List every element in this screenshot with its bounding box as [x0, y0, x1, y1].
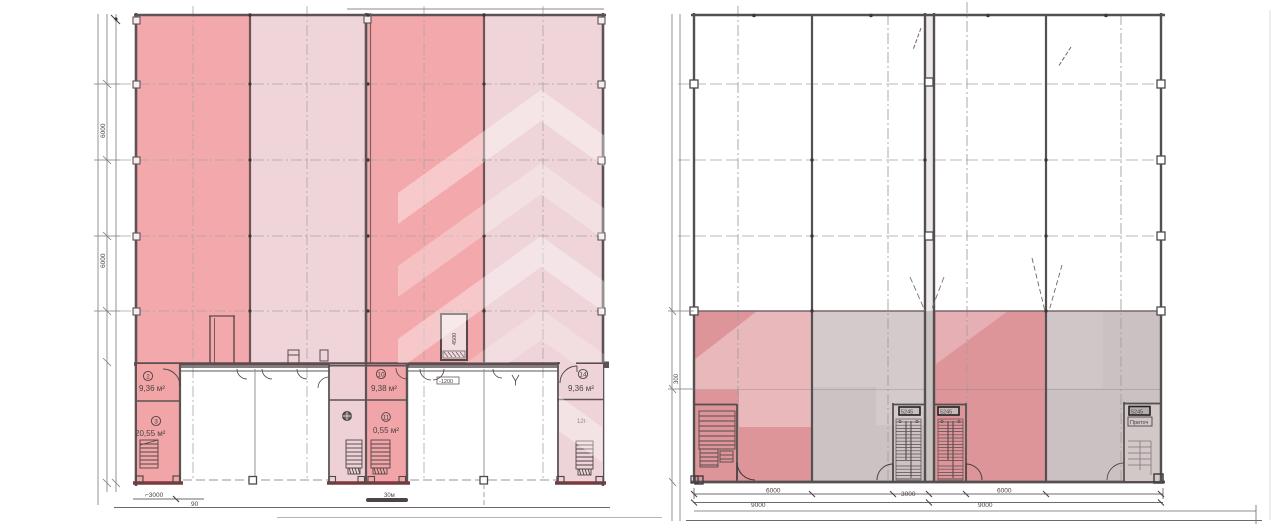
svg-text:9,36 м²: 9,36 м² — [139, 384, 165, 393]
svg-text:20,55 м²: 20,55 м² — [135, 429, 166, 438]
svg-text:5245: 5245 — [901, 410, 913, 416]
svg-text:9,38 м²: 9,38 м² — [371, 384, 397, 393]
svg-text:6000: 6000 — [997, 488, 1012, 495]
svg-text:⌐3000: ⌐3000 — [145, 492, 164, 499]
svg-text:3: 3 — [154, 419, 158, 426]
svg-text:4500: 4500 — [452, 333, 458, 345]
svg-text:6000: 6000 — [100, 253, 107, 268]
svg-text:9000: 9000 — [978, 502, 993, 509]
svg-text:9000: 9000 — [751, 502, 766, 509]
svg-text:6000: 6000 — [100, 123, 107, 138]
svg-text:2: 2 — [146, 374, 150, 381]
svg-text:3000: 3000 — [901, 491, 916, 498]
svg-text:11: 11 — [383, 415, 390, 422]
svg-text:14: 14 — [579, 372, 587, 379]
svg-text:5245: 5245 — [940, 410, 952, 416]
svg-text:Приточ: Приточ — [1130, 420, 1148, 426]
svg-text:10: 10 — [377, 372, 385, 379]
svg-text:-1200: -1200 — [439, 379, 453, 385]
svg-text:5245: 5245 — [1131, 410, 1143, 416]
svg-text:300: 300 — [674, 373, 680, 384]
svg-text:9,36 м²: 9,36 м² — [568, 384, 594, 393]
svg-text:90: 90 — [191, 501, 199, 508]
svg-text:6000: 6000 — [766, 488, 781, 495]
svg-text:0,55 м²: 0,55 м² — [373, 426, 399, 435]
